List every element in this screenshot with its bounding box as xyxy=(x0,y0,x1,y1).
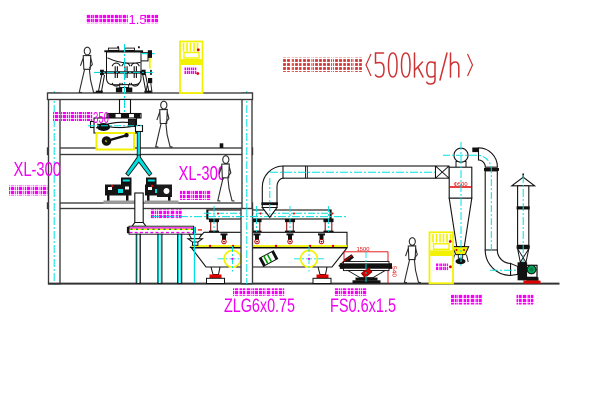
svg-text:FS0.6x1.5: FS0.6x1.5 xyxy=(330,296,396,317)
svg-text:1500: 1500 xyxy=(357,247,370,253)
svg-text:1.5: 1.5 xyxy=(129,12,147,27)
svg-text:ZLG6x0.75: ZLG6x0.75 xyxy=(224,296,295,317)
svg-text:350: 350 xyxy=(93,110,109,127)
svg-text:XL-300: XL-300 xyxy=(14,159,62,181)
